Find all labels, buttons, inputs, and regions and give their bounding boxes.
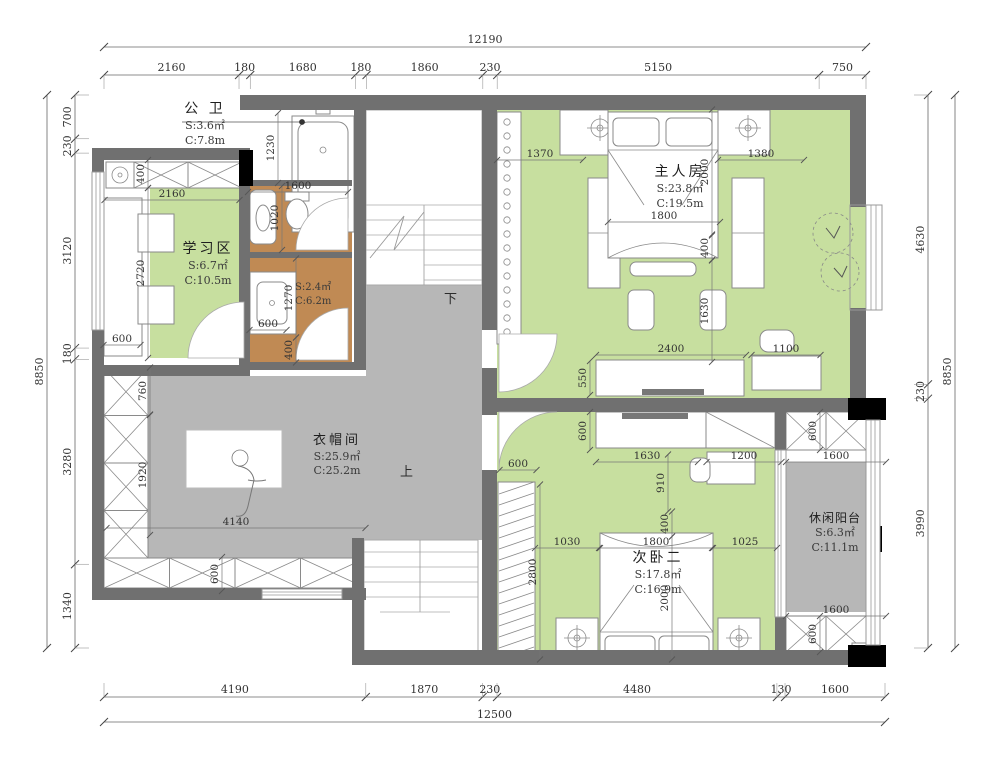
dim-label: 8850 [33,358,46,386]
room-circumference: C:7.8m [168,134,242,149]
room-name: 休闲阳台 [799,510,871,526]
dim-label: 4190 [221,683,249,696]
dim-label: 1870 [410,683,438,696]
room-area: S:25.9㎡ [298,450,376,465]
dim-label: 1200 [731,450,758,462]
room-circumference: C:6.2m [295,295,359,309]
room-circumference: C:16.9m [620,583,696,598]
dim-label: 1630 [699,298,711,325]
dim-label: 910 [655,473,667,493]
room-area: S:6.7㎡ [172,259,244,274]
dim-label: 2160 [159,188,186,200]
dim-label: 1270 [283,285,295,312]
dim-label: 3280 [61,448,74,476]
room-label-public-bath: 公 卫 S:3.6㎡ C:7.8m [168,100,242,149]
dim-label: 1600 [821,683,849,696]
room-label-second-bedroom: 次卧二 S:17.8㎡ C:16.9m [620,549,696,598]
dim-label: 600 [258,318,278,330]
room-label-cloakroom: 衣帽间 S:25.9㎡ C:25.2m [298,432,376,479]
room-area: S:23.8㎡ [638,182,722,197]
dim-label: 760 [137,381,149,401]
room-area: S:17.8㎡ [620,568,696,583]
floor-plan-drawing: 1230160010201270400600216040027206007601… [0,0,1000,777]
dim-label: 550 [577,368,589,388]
dim-label: 230 [61,135,74,156]
room-label-leisure-balcony: 休闲阳台 S:6.3㎡ C:11.1m [799,510,871,556]
dim-label: 400 [283,340,295,360]
dim-label: 180 [234,61,255,74]
dim-label: 12190 [468,33,503,46]
dim-label: 600 [112,333,132,345]
dim-label: 180 [61,343,74,364]
dim-label: 600 [209,564,221,584]
room-label-master-bedroom: 主人房 S:23.8㎡ C:19.5m [638,163,722,212]
room-name: 次卧二 [620,549,696,568]
dim-label: 230 [479,683,500,696]
dim-label: 1380 [748,148,775,160]
dim-label: 2400 [658,343,685,355]
dim-label: 1600 [823,450,850,462]
dim-label: 600 [807,421,819,441]
dim-label: 1600 [285,180,312,192]
dim-label: 1370 [527,148,554,160]
dim-label: 12500 [477,708,512,721]
dim-label: 1340 [61,592,74,620]
dim-label: 1800 [651,210,678,222]
dim-label: 1230 [265,135,277,162]
room-circumference: C:19.5m [638,197,722,212]
dim-label: 230 [914,381,927,402]
dim-label: 3120 [61,237,74,265]
dim-label: 2160 [158,61,186,74]
dim-label: 230 [480,61,501,74]
dim-label: 400 [135,164,147,184]
dim-label: 1030 [554,536,581,548]
dim-label: 1680 [289,61,317,74]
dim-label: 600 [577,421,589,441]
dim-label: 130 [770,683,791,696]
room-circumference: C:10.5m [172,274,244,289]
dim-label: 1630 [634,450,661,462]
dim-label: 1600 [823,604,850,616]
dim-label: 400 [659,514,671,534]
dim-label: 2800 [527,559,539,586]
room-name: 公 卫 [168,100,242,119]
room-circumference: C:11.1m [799,541,871,556]
room-area: S:3.6㎡ [168,119,242,134]
dim-label: 2720 [135,260,147,287]
dim-label: 600 [508,458,528,470]
room-label-study: 学习区 S:6.7㎡ C:10.5m [172,240,244,289]
dim-label: 5150 [644,61,672,74]
room-name: 衣帽间 [298,432,376,450]
room-label-small-bath: S:2.4㎡ C:6.2m [295,281,359,308]
dim-label: 4140 [223,516,250,528]
room-name: 学习区 [172,240,244,259]
dim-label: 3990 [914,509,927,537]
floor-plan: 1230160010201270400600216040027206007601… [0,0,1000,777]
room-name: 主人房 [638,163,722,182]
stairs-down-label: 下 [444,288,457,307]
dim-label: 1020 [269,205,281,232]
dim-label: 750 [832,61,853,74]
dim-label: 4630 [914,226,927,254]
room-circumference: C:25.2m [298,464,376,479]
dim-label: 1860 [411,61,439,74]
dim-label: 8850 [941,358,954,386]
dim-label: 1100 [773,343,800,355]
dim-label: 1920 [137,462,149,489]
dim-label: 600 [807,624,819,644]
room-area: S:6.3㎡ [799,526,871,541]
dim-label: 700 [61,106,74,127]
dim-label: 400 [699,238,711,258]
stairs-up-label: 上 [400,461,413,480]
dim-label: 180 [350,61,371,74]
dim-label: 4480 [623,683,651,696]
dim-label: 1025 [732,536,759,548]
room-area: S:2.4㎡ [295,281,359,295]
dim-label: 1800 [643,536,670,548]
